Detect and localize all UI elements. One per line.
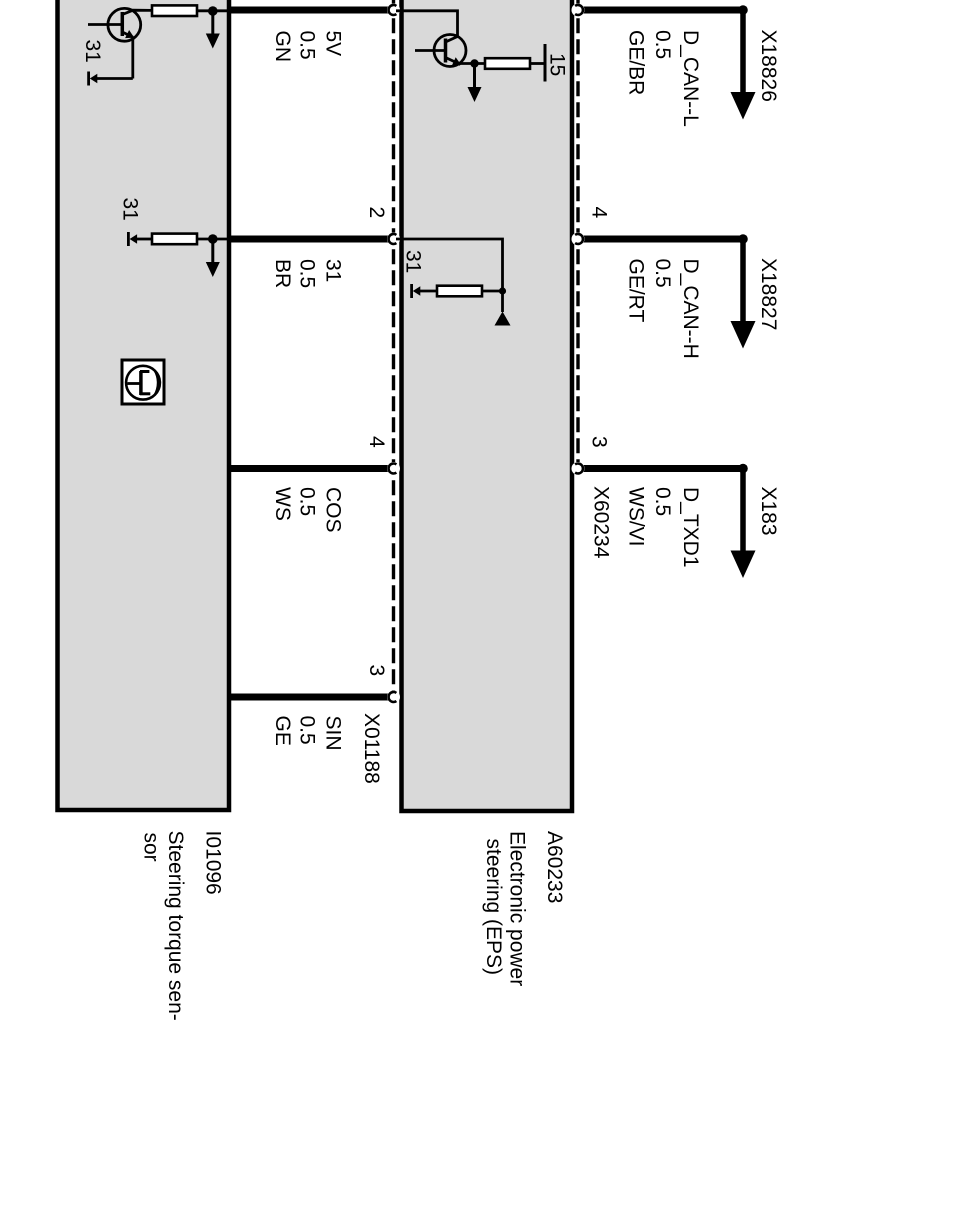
svg-text:0.5: 0.5: [296, 31, 319, 60]
svg-text:GE: GE: [271, 716, 294, 746]
svg-text:15: 15: [546, 53, 569, 76]
svg-text:X01188: X01188: [360, 713, 383, 784]
svg-text:Steering torque sen-: Steering torque sen-: [164, 831, 187, 1021]
svg-text:GN: GN: [271, 31, 294, 63]
svg-text:sor: sor: [140, 833, 163, 862]
svg-text:steering (EPS): steering (EPS): [482, 839, 505, 976]
svg-text:3: 3: [365, 665, 388, 677]
svg-text:0.5: 0.5: [296, 716, 319, 745]
svg-text:0.5: 0.5: [296, 259, 319, 288]
svg-text:X18826: X18826: [757, 30, 780, 102]
svg-text:5V: 5V: [322, 31, 345, 57]
svg-text:0.5: 0.5: [651, 487, 674, 516]
svg-text:SIN: SIN: [322, 716, 345, 751]
svg-text:WS: WS: [271, 487, 294, 521]
svg-text:31: 31: [81, 40, 104, 63]
svg-text:D_CAN--H: D_CAN--H: [679, 259, 702, 359]
svg-text:BR: BR: [271, 259, 294, 288]
svg-text:31: 31: [402, 250, 425, 273]
svg-text:31: 31: [322, 259, 345, 282]
svg-text:0.5: 0.5: [296, 487, 319, 516]
svg-text:2: 2: [365, 207, 388, 219]
svg-text:X183: X183: [757, 487, 780, 536]
svg-text:31: 31: [119, 198, 142, 221]
svg-text:A60233: A60233: [543, 831, 566, 903]
svg-text:3: 3: [588, 436, 611, 448]
svg-text:I01096: I01096: [201, 831, 224, 895]
svg-text:GE/BR: GE/BR: [625, 30, 648, 95]
svg-text:GE/RT: GE/RT: [625, 259, 648, 323]
svg-text:0.5: 0.5: [651, 259, 674, 288]
svg-text:4: 4: [588, 207, 611, 219]
svg-text:4: 4: [365, 436, 388, 448]
svg-text:Electronic power: Electronic power: [506, 831, 529, 986]
svg-text:0.5: 0.5: [651, 30, 674, 59]
svg-text:X60234: X60234: [590, 486, 613, 559]
svg-text:D_CAN--L: D_CAN--L: [679, 30, 702, 127]
svg-text:COS: COS: [322, 487, 345, 533]
svg-text:WS/VI: WS/VI: [625, 487, 648, 547]
svg-text:D_TXD1: D_TXD1: [679, 487, 702, 568]
svg-text:X18827: X18827: [757, 258, 780, 330]
